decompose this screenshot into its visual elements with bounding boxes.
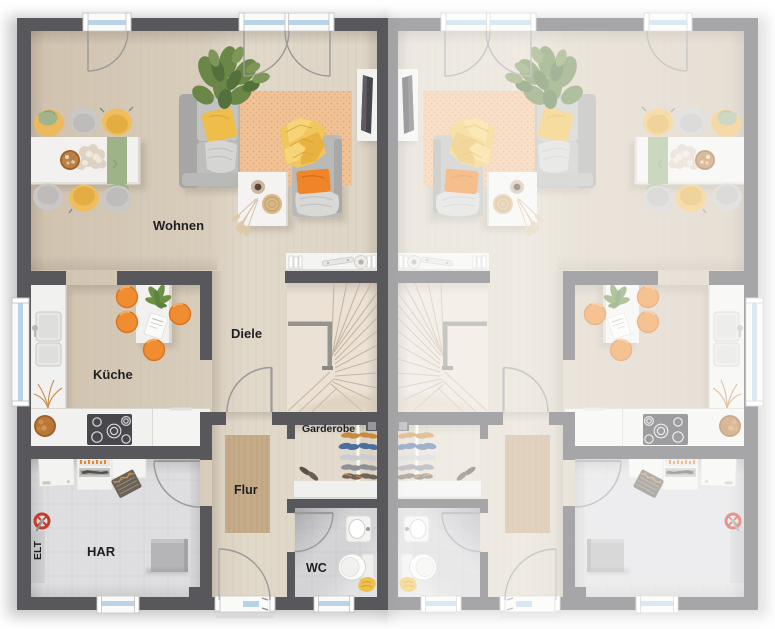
svg-text:Küche: Küche (93, 367, 133, 382)
svg-text:HAR: HAR (87, 544, 116, 559)
svg-text:WC: WC (306, 561, 327, 575)
svg-text:ELT: ELT (32, 540, 44, 560)
svg-text:Garderobe: Garderobe (302, 423, 355, 435)
svg-text:Flur: Flur (234, 483, 258, 497)
svg-text:Wohnen: Wohnen (153, 218, 204, 233)
svg-text:Diele: Diele (231, 326, 262, 341)
